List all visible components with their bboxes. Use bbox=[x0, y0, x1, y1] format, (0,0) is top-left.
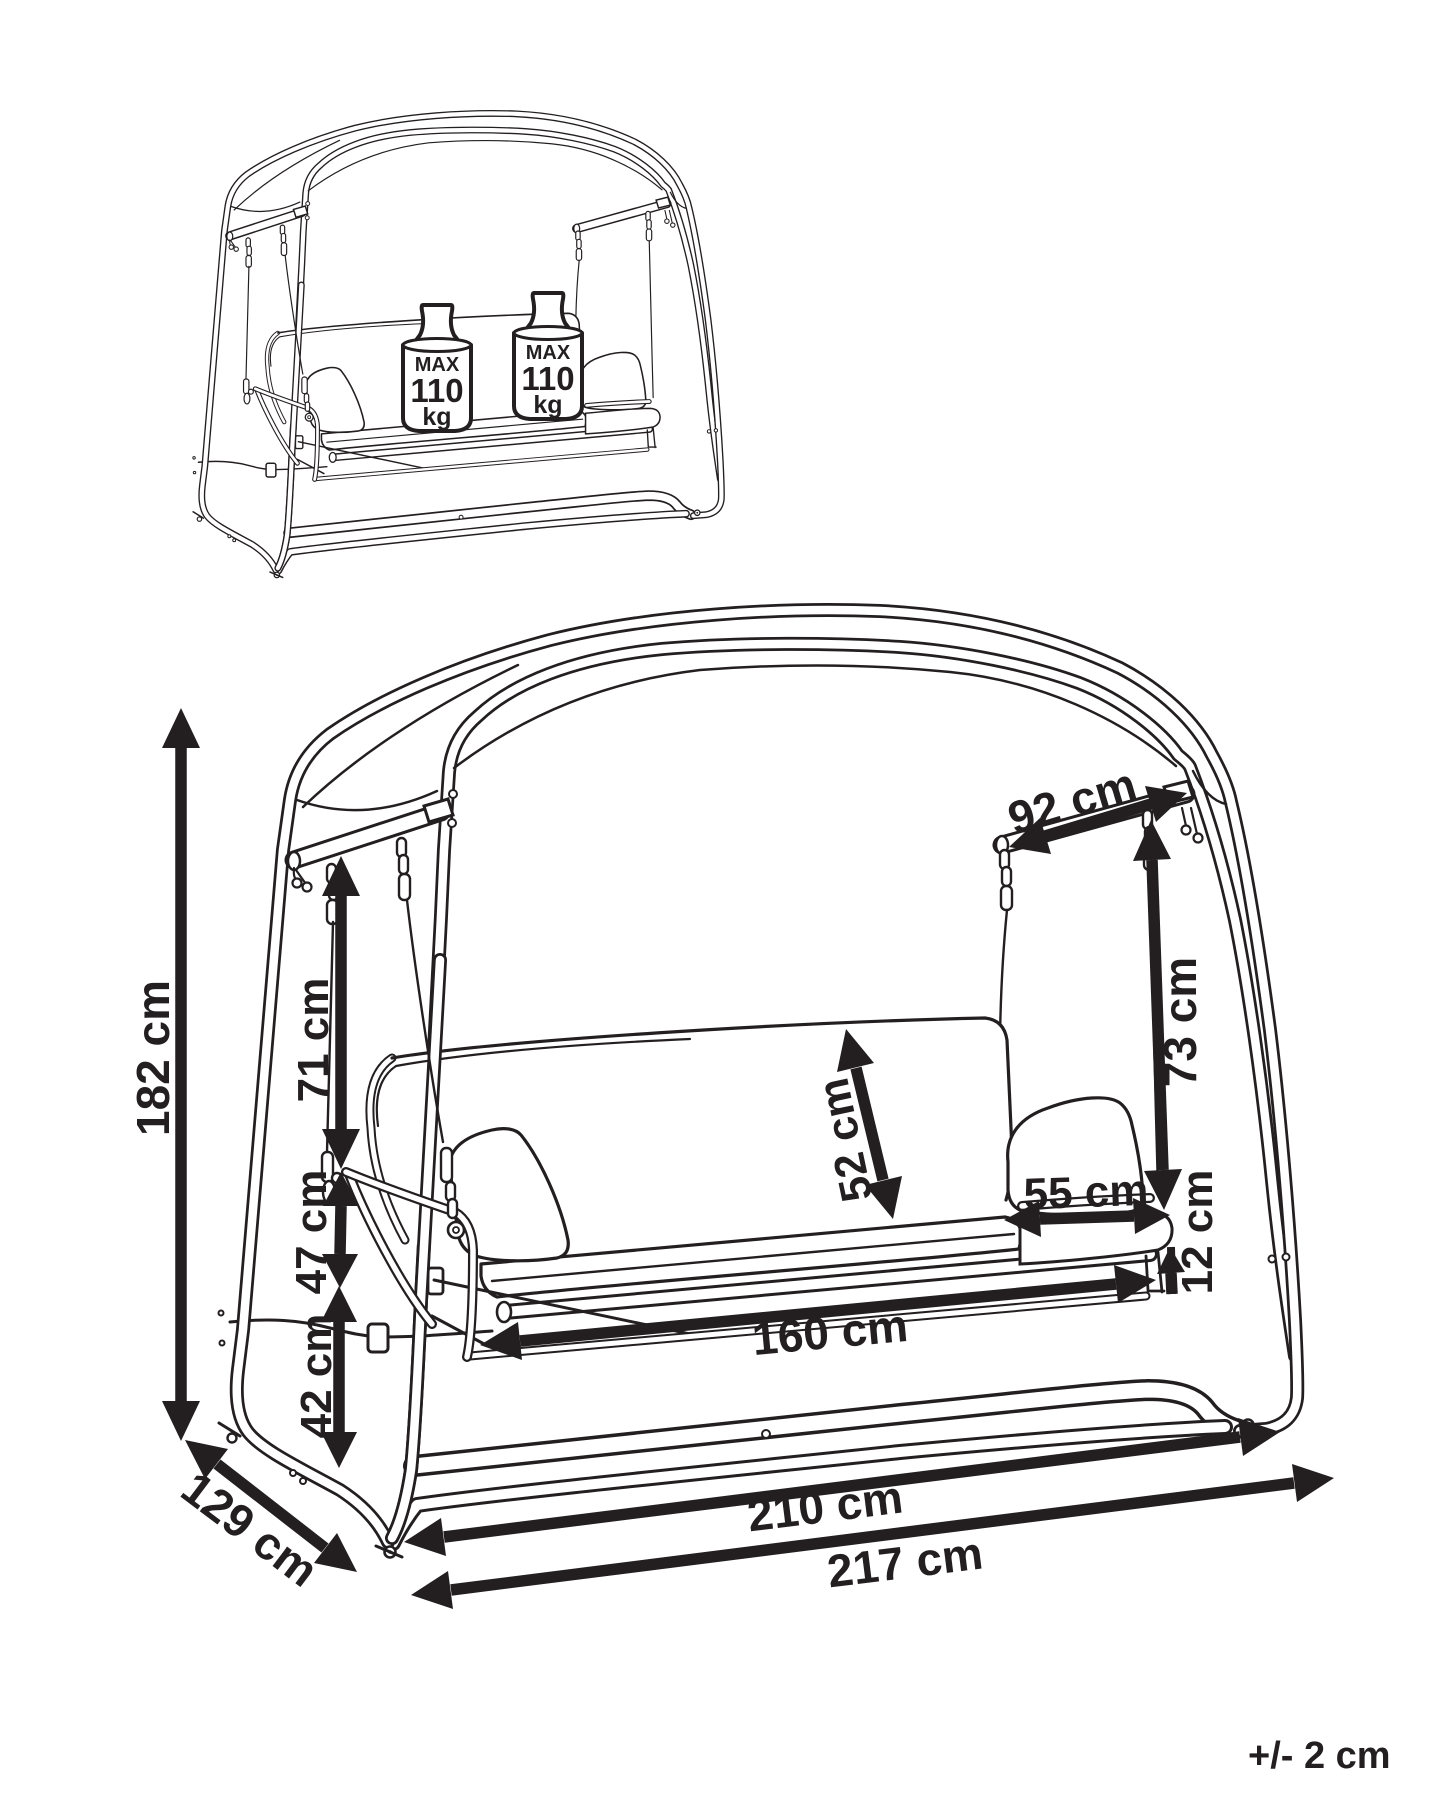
svg-text:kg: kg bbox=[422, 403, 451, 431]
svg-text:55 cm: 55 cm bbox=[1023, 1166, 1149, 1219]
svg-text:42 cm: 42 cm bbox=[292, 1314, 341, 1439]
svg-text:kg: kg bbox=[533, 391, 562, 419]
svg-text:+/- 2 cm: +/- 2 cm bbox=[1248, 1735, 1391, 1777]
svg-text:73 cm: 73 cm bbox=[1154, 957, 1206, 1087]
svg-text:47 cm: 47 cm bbox=[287, 1170, 336, 1295]
svg-text:12 cm: 12 cm bbox=[1173, 1170, 1222, 1295]
svg-text:160 cm: 160 cm bbox=[750, 1299, 910, 1365]
svg-text:71 cm: 71 cm bbox=[289, 978, 338, 1103]
svg-text:182 cm: 182 cm bbox=[127, 980, 179, 1136]
